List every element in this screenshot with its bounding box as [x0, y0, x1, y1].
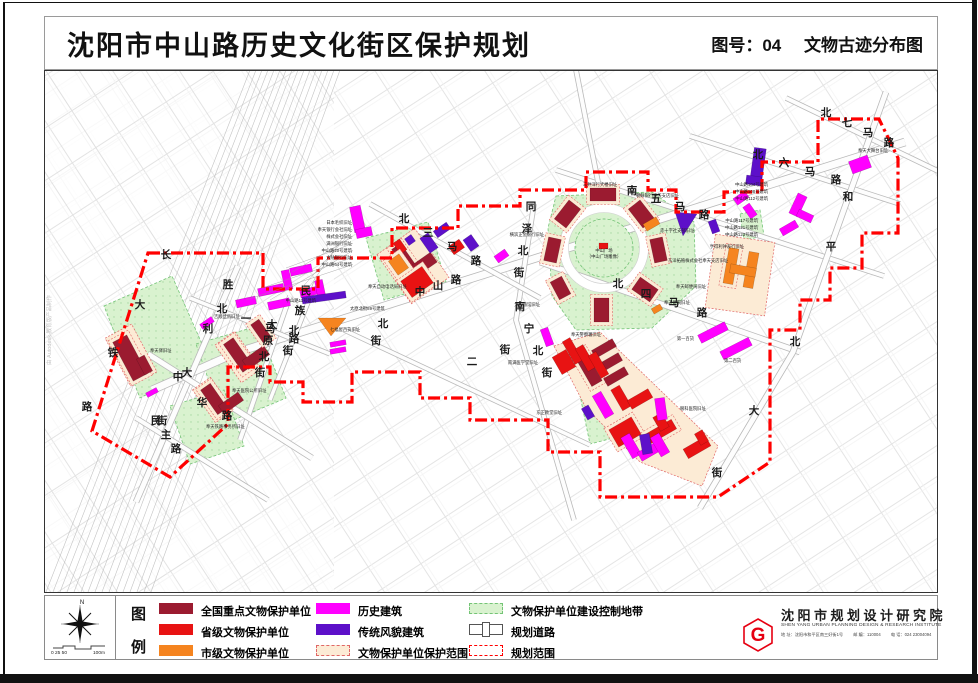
- street-label: 同: [526, 201, 537, 213]
- street-label: 七: [842, 116, 853, 129]
- street-label: 街: [711, 466, 723, 479]
- street-label: 路: [831, 173, 842, 186]
- north-scale-cell: N 0 25 50 100m: [45, 596, 116, 659]
- street-label: 原: [263, 335, 274, 347]
- street-label: 六: [779, 156, 790, 169]
- annotation-label: 第一百货: [677, 335, 695, 342]
- legend-label: 规划范围: [511, 645, 555, 661]
- street-label: 路: [451, 273, 462, 286]
- street-label: 长: [161, 248, 172, 261]
- street-label: 大: [749, 404, 760, 417]
- scale-bar-icon: [53, 646, 105, 649]
- legend-swatch-municipal: [159, 645, 193, 656]
- autocad-watermark: 由 Autodesk 教育版产品制作: [45, 295, 53, 365]
- street-label: 民: [151, 415, 162, 427]
- legend-heading-1: 图: [131, 603, 146, 624]
- annotation-label: 奉天医院公所旧址: [232, 387, 267, 394]
- figure-name: 文物古迹分布图: [804, 36, 923, 55]
- street-label: 主: [161, 428, 172, 441]
- legend-swatch-provincial: [159, 624, 193, 635]
- street-label: 路: [471, 254, 482, 267]
- annotation-label: 满洲银行旧址: [326, 240, 352, 247]
- street-label: 中: [173, 370, 184, 383]
- legend-panel: N 0 25 50 100m 图 例 全国重点文物保护单位省级文物保护单位市级文…: [44, 595, 938, 660]
- street-label: 马: [447, 241, 458, 253]
- page-title: 沈阳市中山路历史文化街区保护规划: [67, 24, 531, 63]
- annotation-label: 眼科医院旧址: [680, 405, 706, 412]
- figure-number: 图号：04: [711, 36, 781, 55]
- street-label: 大: [182, 366, 193, 379]
- street-label: 一: [241, 313, 252, 325]
- legend-swatch-scope: [316, 645, 350, 656]
- legend-heading-2: 例: [131, 636, 146, 657]
- annotation-label: 奉天邮便局旧址: [676, 283, 707, 290]
- annotation-label: 奉天银行会社旧址: [318, 226, 353, 233]
- plan-sheet: 沈阳市中山路历史文化街区保护规划 图号：04 文物古迹分布图: [0, 0, 978, 683]
- annotation-label: 大和旅馆旧址: [514, 301, 540, 308]
- legend-swatch-control: [469, 603, 503, 614]
- street-label: 北: [533, 344, 544, 357]
- street-label: 四: [641, 288, 652, 300]
- street-label: 街: [370, 334, 382, 347]
- street-label: 街: [254, 366, 266, 379]
- annotation-label: 赤十字社支部旧址: [660, 227, 695, 234]
- street-label: 北: [259, 350, 270, 363]
- street-label: 路: [699, 208, 710, 221]
- annotation-label: 三井洋行大楼旧址: [583, 181, 618, 188]
- street-label: 北: [790, 335, 801, 348]
- building-national: [590, 188, 616, 201]
- annotation-label: 中山路121号建筑: [725, 224, 759, 231]
- publisher-name-en: SHEN YANG URBAN PLANNING DESIGN & RESEAR…: [781, 623, 942, 628]
- legend-label: 历史建筑: [358, 603, 402, 619]
- street-label: 马: [805, 166, 816, 178]
- annotation-label: 奉天铁路事务所旧址: [206, 423, 245, 430]
- svg-text:G: G: [751, 625, 766, 646]
- legend-label: 传统风貌建筑: [358, 624, 424, 640]
- street-label: 宁: [524, 322, 535, 335]
- street-label: 平: [826, 241, 837, 253]
- street-label: 街: [499, 343, 511, 356]
- legend-label: 市级文物保护单位: [201, 645, 289, 661]
- map-canvas[interactable]: 长大铁路胜利大街中华路民主路太原北街民族北街北一马路北三马路中山路同泽北街南宁北…: [44, 70, 938, 593]
- street-label: 路: [222, 409, 233, 422]
- figure-caption: 图号：04 文物古迹分布图: [693, 31, 923, 56]
- street-label: 中: [415, 285, 426, 298]
- street-label: 大: [135, 298, 146, 311]
- legend-swatch-national: [159, 603, 193, 614]
- legend-label: 全国重点文物保护单位: [201, 603, 311, 619]
- annotation-label: 奉天警察署旧址: [571, 331, 602, 338]
- annotation-label: 七福屋百货旧址: [330, 326, 361, 333]
- legend-swatch-historic: [316, 603, 350, 614]
- street-label: 北: [378, 317, 389, 330]
- publisher-name: 沈阳市规划设计研究院: [781, 605, 946, 624]
- street-label: 北: [518, 244, 529, 257]
- publisher-phone: 电 话：024 23004094: [891, 632, 932, 637]
- annotation-label: 东洋拓殖株式会社奉天支店旧址: [668, 257, 729, 264]
- publisher-address: 地 址：沈阳市和平区南三好街1号: [781, 632, 843, 637]
- street-label: 街: [541, 366, 553, 379]
- street-label: 街: [513, 266, 525, 279]
- publisher-contact: 地 址：沈阳市和平区南三好街1号 邮 编：110004 电 话：024 2300…: [781, 632, 940, 638]
- annotation-label: 中山广场: [595, 247, 613, 254]
- annotation-label: 奉天大舞台旧址: [858, 147, 889, 154]
- street-label: 三: [423, 227, 434, 239]
- north-label: N: [80, 600, 84, 606]
- legend-label: 文物保护单位保护范围: [358, 645, 468, 661]
- annotation-label: 中山路108号建筑: [735, 188, 769, 195]
- annotation-label: 中山路117号建筑: [725, 217, 758, 224]
- street-label: 北: [753, 148, 764, 161]
- legend-swatch-boundary: [469, 645, 503, 656]
- street-label: 利: [203, 322, 214, 335]
- legend-label: 规划道路: [511, 624, 555, 640]
- sheet-border-top: [3, 2, 972, 3]
- north-arrow: N: [45, 596, 115, 659]
- street-label: 族: [295, 304, 306, 317]
- street-label: 北: [821, 106, 832, 119]
- street-label: 路: [171, 442, 182, 455]
- map-frame: 长大铁路胜利大街中华路民主路太原北街民族北街北一马路北三马路中山路同泽北街南宁北…: [44, 70, 938, 593]
- annotation-label: 太原北街89号建筑: [350, 305, 386, 312]
- street-label: 民: [301, 285, 312, 297]
- annotation-label: 东正教堂旧址: [536, 409, 562, 416]
- annotation-label: 中山路104号建筑: [735, 181, 769, 188]
- street-label: 北: [399, 212, 410, 225]
- annotation-label: 奉天驿旧址: [150, 347, 172, 354]
- sheet-border-right: [972, 0, 977, 683]
- annotation-label: 中山路112号建筑: [735, 195, 768, 202]
- annotation-label: 吉顺丝房旧址: [214, 313, 240, 320]
- annotation-label: 日本毛织旧址: [326, 219, 352, 226]
- street-label: 胜: [222, 278, 234, 291]
- street-label: 马: [675, 201, 686, 213]
- annotation-label: 亨得利钟表行旧址: [710, 243, 745, 250]
- annotation-label: 奉天医院旧址: [664, 299, 690, 306]
- street-label: 和: [842, 190, 854, 203]
- street-label: 铁: [108, 346, 119, 359]
- street-label: 华: [197, 396, 208, 409]
- annotation-label: 株式会社旧址: [326, 233, 352, 240]
- legend-label: 省级文物保护单位: [201, 624, 289, 640]
- annotation-label: 奉天自动电话局旧址: [368, 283, 407, 290]
- annotation-label: 朝鲜银行奉天支店旧址: [636, 192, 680, 199]
- street-label: 路: [289, 332, 300, 345]
- street-label: 路: [697, 306, 708, 319]
- title-bar: 沈阳市中山路历史文化街区保护规划 图号：04 文物古迹分布图: [44, 16, 938, 70]
- annotation-label: 中山路64号建筑: [321, 261, 352, 268]
- street-label: 路: [82, 400, 93, 413]
- street-label: 二: [467, 356, 478, 368]
- sheet-border-bottom: [0, 674, 978, 683]
- annotation-label: 中山路20号建筑: [321, 247, 352, 254]
- legend-swatch-road: [469, 624, 503, 635]
- annotation-label: 中山路11号建筑: [286, 297, 317, 304]
- scale-ticks: 0 25 50: [51, 651, 67, 656]
- annotation-label: 大陆银行旧址: [326, 254, 352, 261]
- building-national: [594, 298, 609, 322]
- annotation-label: 第二百货: [724, 357, 742, 364]
- legend-label: 文物保护单位建设控制地带: [511, 603, 643, 619]
- legend-swatch-traditional: [316, 624, 350, 635]
- street-label: 马: [863, 127, 874, 139]
- publisher-logo: G: [743, 618, 773, 652]
- publisher-postcode: 邮 编：110004: [853, 632, 880, 637]
- annotation-label: 南满医学堂旧址: [508, 359, 539, 366]
- annotation-label: 横滨正金银行旧址: [510, 231, 545, 238]
- annotation-label: 中山路123号建筑: [725, 231, 759, 238]
- scale-end: 100m: [93, 651, 105, 656]
- sheet-border-left: [3, 2, 5, 674]
- street-label: 马: [265, 323, 276, 335]
- street-label: 北: [613, 277, 624, 290]
- annotation-label: （中山广场雕像）: [587, 253, 621, 260]
- street-label: 街: [282, 344, 294, 357]
- street-label: 山: [433, 279, 444, 292]
